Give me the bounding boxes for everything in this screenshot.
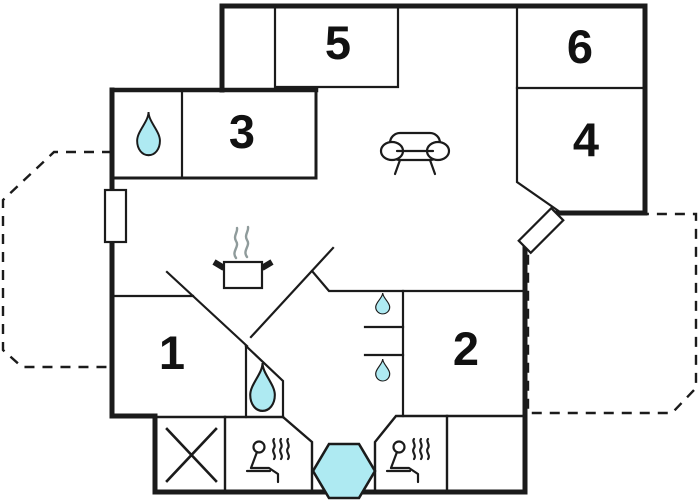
door-icon [519, 208, 564, 253]
sauna-steam [273, 439, 275, 459]
window-icon [105, 190, 126, 242]
interior-walls [112, 6, 645, 492]
floor-plan-canvas: 1 2 3 4 5 6 [0, 0, 700, 500]
sofa-icon [381, 133, 449, 174]
pot-steam-2 [245, 227, 248, 257]
sauna-steam [420, 439, 422, 459]
room-4-label: 4 [573, 113, 599, 166]
hall-top-wall [312, 271, 525, 291]
terrace-right-area [528, 214, 696, 413]
sauna-steam [287, 439, 289, 459]
sauna-icon [387, 439, 429, 482]
room-2-label: 2 [453, 322, 479, 375]
room-1-label: 1 [159, 326, 185, 379]
cross-icon [167, 429, 216, 481]
water-drop-icon [376, 293, 390, 314]
water-drop-icon [137, 112, 160, 155]
cooking-pot-icon [214, 227, 272, 288]
pot-handle-right [262, 262, 272, 268]
sauna-steam [427, 439, 429, 459]
room-6-label: 6 [567, 20, 593, 73]
terrace-right [528, 214, 696, 413]
sauna-steam [413, 439, 415, 459]
floor-plan: 1 2 3 4 5 6 [0, 0, 700, 500]
room-3-label: 3 [229, 105, 255, 158]
sauna-person-head [254, 442, 265, 453]
sauna-icon [247, 439, 289, 482]
pot-handle-left [214, 262, 224, 268]
water-drop-icon [376, 359, 390, 381]
room-5-label: 5 [325, 16, 351, 69]
outer-walls [112, 6, 645, 492]
sauna-person-back [251, 452, 257, 468]
sauna-steam [280, 439, 282, 459]
pot-steam-1 [234, 228, 237, 258]
terrace-left [3, 152, 112, 367]
sauna-person-back [391, 452, 397, 468]
sauna2-left-wall [375, 416, 525, 492]
hall-diagonal-wall [251, 248, 333, 337]
terrace-left-area [3, 152, 112, 367]
sauna-person-head [394, 442, 405, 453]
cross-lines [167, 429, 216, 481]
room4-left-wall [517, 6, 560, 212]
sofa-leg-left [395, 160, 400, 174]
sofa-leg-right [430, 160, 435, 174]
pot-body [224, 262, 262, 288]
